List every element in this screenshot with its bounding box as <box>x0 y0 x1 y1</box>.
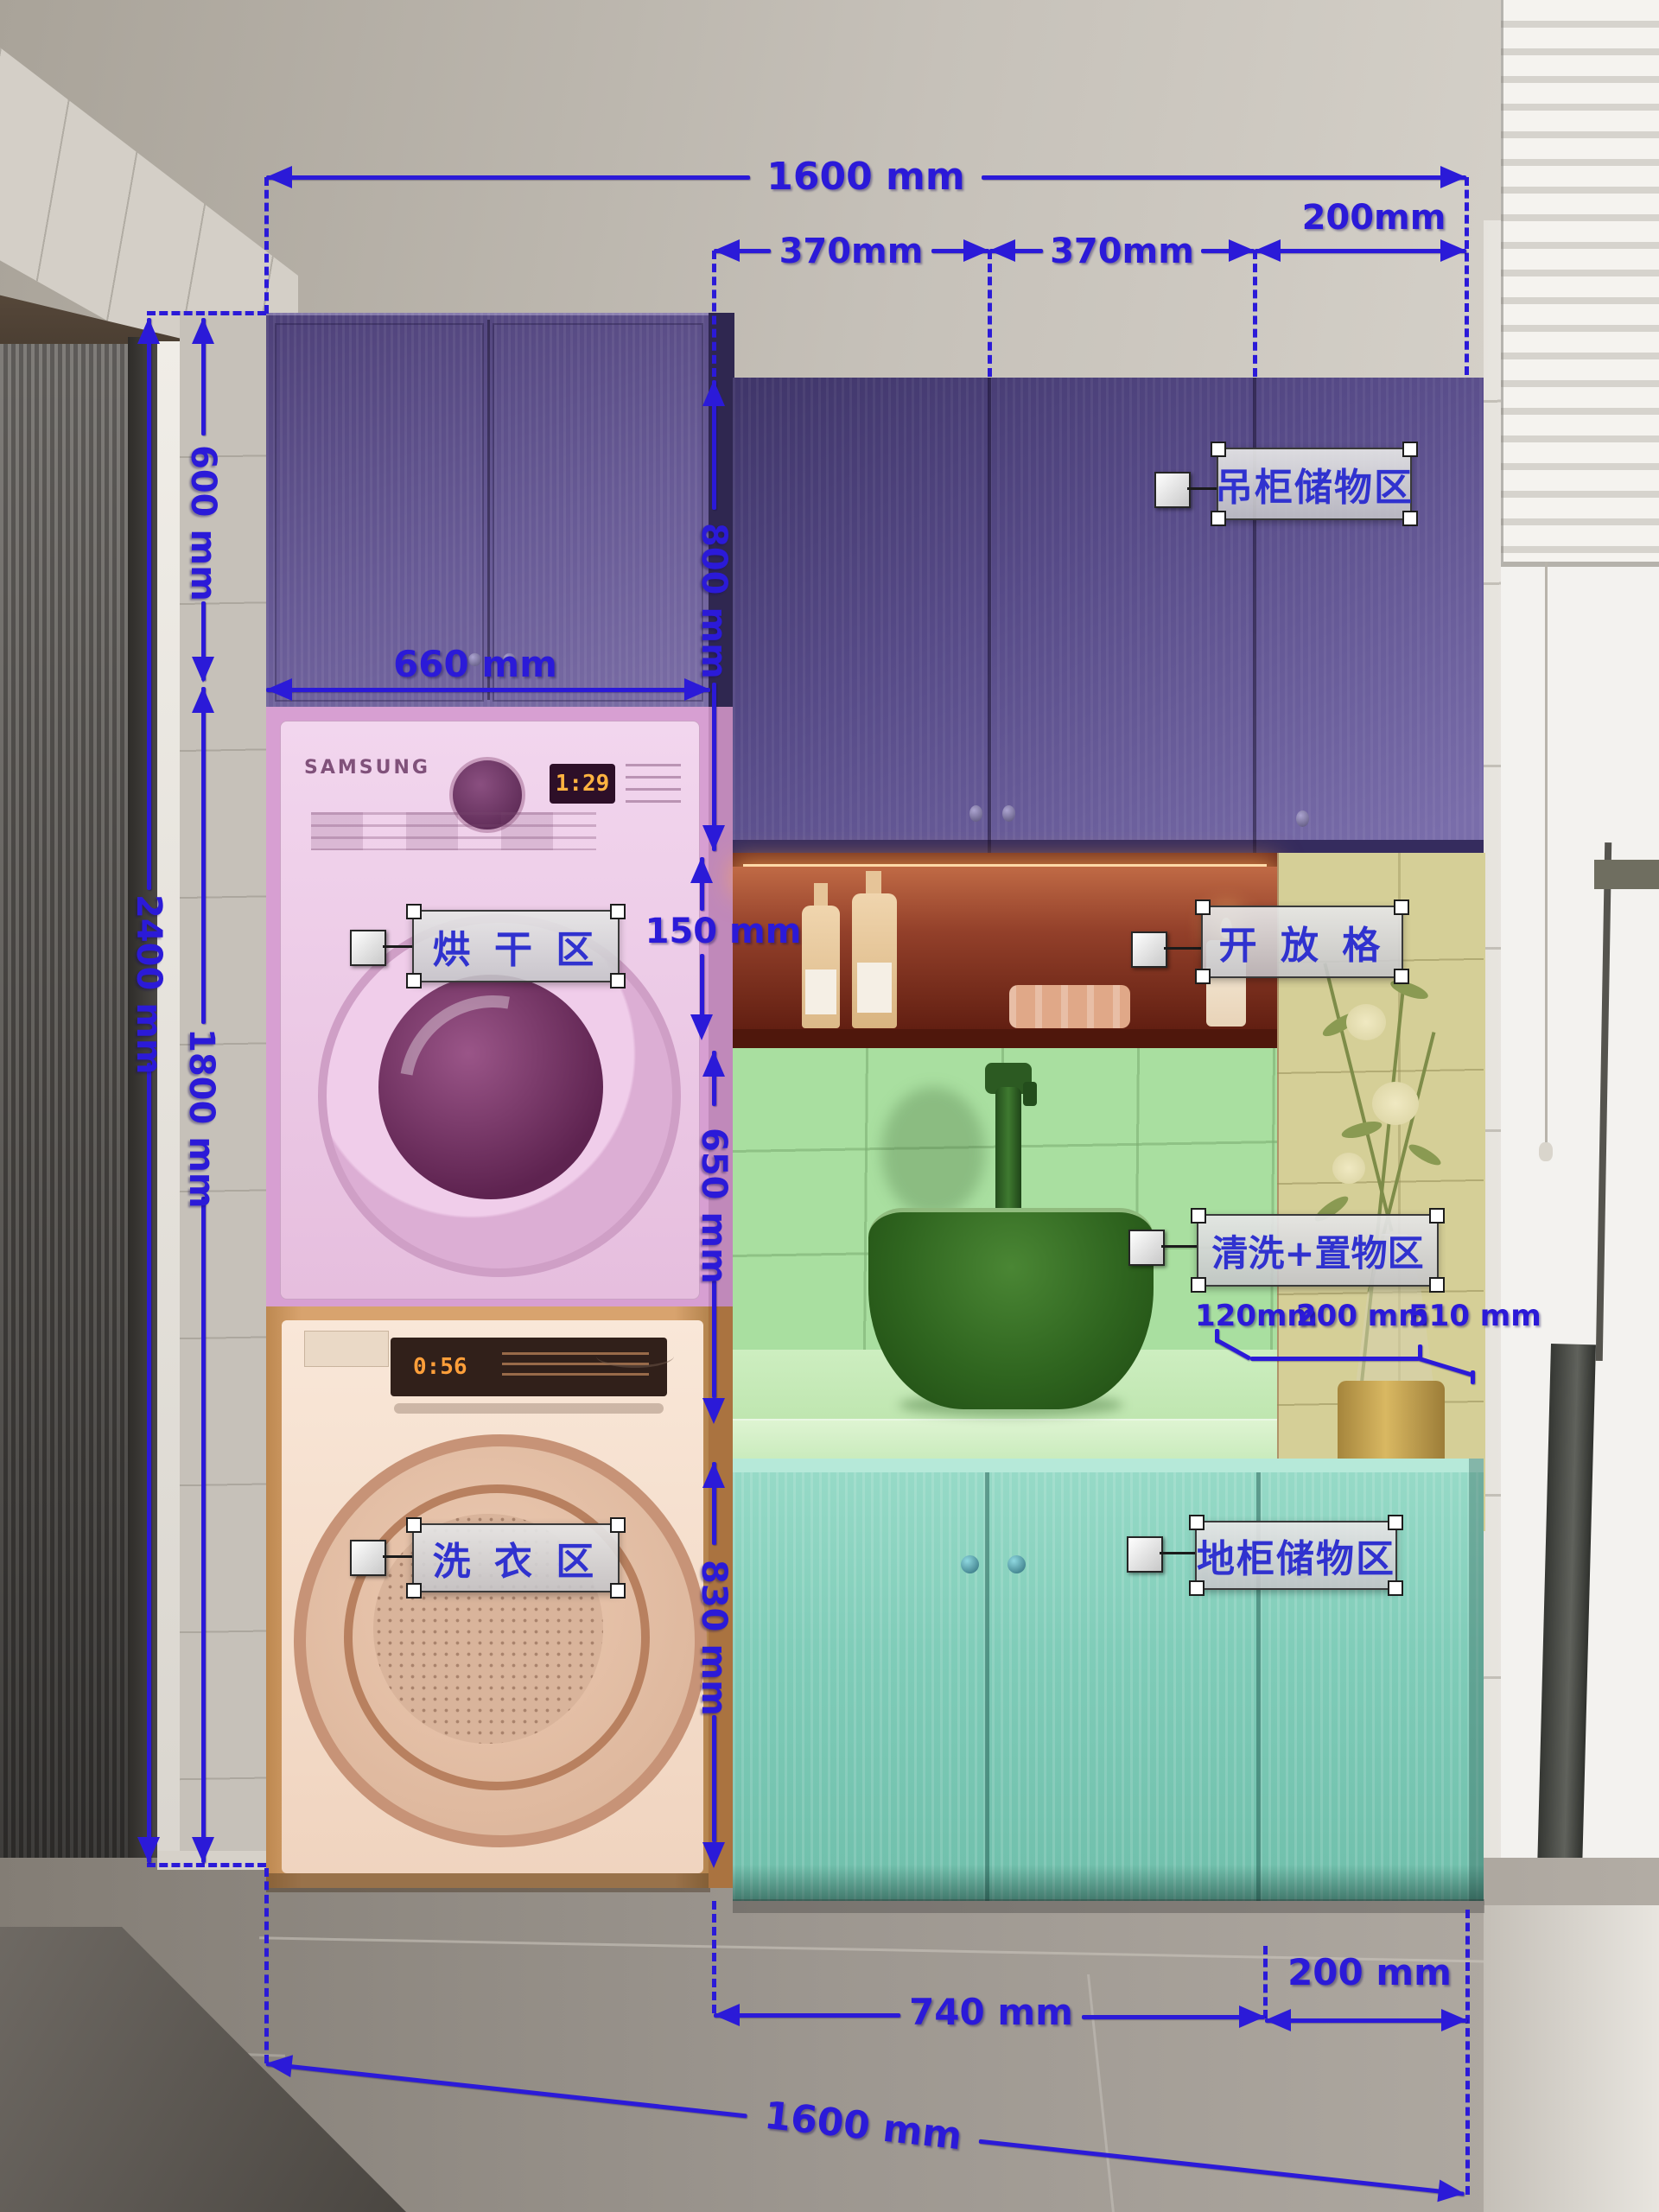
tag-handle <box>1189 1515 1205 1530</box>
countertop-front-edge <box>733 1419 1277 1460</box>
dim-arrow-up <box>702 1462 725 1488</box>
dim-arrow-down <box>690 1014 713 1040</box>
tag-lead-line <box>383 945 414 948</box>
dim-bottom-right: 200 mm <box>1279 1955 1460 1991</box>
tag-handle <box>1388 1580 1403 1596</box>
dim-arrow-left <box>264 2052 293 2077</box>
cabinet-knob <box>969 805 982 822</box>
dim-arrow-up <box>702 1051 725 1077</box>
tag-open-shelf: 开 放 格 <box>1201 906 1403 978</box>
base-cabinet-right-shade <box>1469 1459 1484 1901</box>
dim-arrow-left <box>714 239 740 262</box>
flower-bloom <box>1332 1153 1365 1184</box>
green-glass-basin <box>868 1208 1154 1409</box>
tag-label: 洗 衣 区 <box>433 1530 600 1586</box>
tag-handle <box>1191 1208 1206 1224</box>
annotated-laundry-room-diagram: SAMSUNG 1:29 0:56 <box>0 0 1659 2212</box>
dim-arrow-left <box>1265 2009 1291 2031</box>
dim-top-seg3: 200mm <box>1287 200 1460 235</box>
cabinet-knob <box>1296 810 1309 827</box>
washer-logo-script <box>596 1344 674 1368</box>
tag-handle <box>1195 969 1211 984</box>
tag-handle <box>1429 1277 1445 1293</box>
dim-line <box>201 1197 206 1863</box>
tag-marker <box>350 930 386 966</box>
dim-top-total: 1600 mm <box>753 158 978 196</box>
washer-sticker <box>304 1331 389 1367</box>
open-shelf-bottom-lip <box>733 1029 1277 1050</box>
tag-wash-storage: 清洗+置物区 <box>1197 1214 1439 1287</box>
dim-arrow-right <box>1440 239 1466 262</box>
dim-arrow-right <box>1440 166 1466 188</box>
tag-handle <box>610 1517 626 1533</box>
tag-label: 地柜储物区 <box>1197 1528 1395 1583</box>
dim-arrow-right <box>1441 2009 1467 2031</box>
dim-top-seg1: 370mm <box>772 234 931 269</box>
tag-handle <box>406 973 422 988</box>
dim-line <box>147 1063 151 1863</box>
dim-arrow-left <box>266 166 292 188</box>
dim-dryer-width: 660 mm <box>363 646 588 683</box>
dim-arrow-down <box>137 1837 160 1863</box>
dim-extension <box>712 1901 716 2013</box>
dim-extension <box>147 1863 266 1867</box>
base-cabinet-bottom-shadow <box>733 1865 1484 1901</box>
tag-handle <box>610 973 626 988</box>
dim-arrow-right <box>1437 2179 1465 2204</box>
dim-extension <box>264 177 269 314</box>
tag-lead-line <box>383 1555 414 1558</box>
dim-arrow-up <box>690 857 713 883</box>
dim-counter-seg2: 200 mm <box>1296 1301 1403 1331</box>
tag-handle <box>1394 899 1409 915</box>
cabinet-knob <box>961 1555 979 1573</box>
tag-label: 开 放 格 <box>1219 914 1386 969</box>
dim-bracket <box>1250 1357 1420 1361</box>
dim-extension <box>264 1868 269 2063</box>
cabinet-knob <box>1007 1555 1026 1573</box>
dim-extension <box>988 251 992 377</box>
dim-arrow-down <box>702 1398 725 1424</box>
dim-line <box>266 175 750 180</box>
tag-marker <box>1128 1230 1165 1266</box>
tag-handle <box>1211 442 1226 457</box>
window-blinds <box>1501 0 1659 567</box>
blind-cord <box>1545 562 1548 1142</box>
dim-extension <box>1465 177 1469 375</box>
washer-bottom-shadow <box>266 1873 710 1892</box>
shelf-bottle-label <box>805 969 836 1014</box>
tag-lead-line <box>1187 487 1218 490</box>
dim-arrow-right <box>963 239 989 262</box>
tag-handle <box>610 904 626 919</box>
tag-laundry-area: 洗 衣 区 <box>412 1523 620 1592</box>
dryer-display: 1:29 <box>550 764 615 804</box>
tag-marker <box>350 1540 386 1576</box>
tag-label: 清洗+置物区 <box>1211 1224 1423 1277</box>
dim-line <box>982 175 1466 180</box>
dim-arrow-right <box>684 678 710 701</box>
tag-handle <box>406 904 422 919</box>
tag-label: 吊柜储物区 <box>1215 456 1414 512</box>
tag-marker <box>1127 1536 1163 1573</box>
wall-cabinet-seam <box>988 378 991 853</box>
flower-bloom <box>1346 1004 1386 1040</box>
dim-extension <box>712 251 716 377</box>
dim-arrow-down <box>702 825 725 851</box>
dim-total-height: 2400 mm <box>131 894 166 1058</box>
dim-line <box>700 954 704 1016</box>
dim-bottom-left: 740 mm <box>900 1994 1082 2031</box>
washer-display-time: 0:56 <box>413 1354 467 1380</box>
dim-arrow-left <box>1255 239 1281 262</box>
wall-cabinets-bottom-edge <box>733 840 1484 853</box>
tag-base-cabinet: 地柜储物区 <box>1195 1521 1397 1590</box>
floor-cabinet-shadow <box>733 1899 1484 1913</box>
dim-line <box>1082 2015 1265 2019</box>
tag-handle <box>1402 442 1418 457</box>
dim-backsplash-height: 650 mm <box>696 1128 731 1274</box>
tag-drying-area: 烘 干 区 <box>412 910 620 982</box>
tag-handle <box>1191 1277 1206 1293</box>
dim-top-seg2: 370mm <box>1042 234 1202 269</box>
dryer-program-list <box>311 812 596 850</box>
dryer-panel-text-lines <box>626 764 681 804</box>
dryer-brand-label: SAMSUNG <box>304 757 430 779</box>
dim-arrow-down <box>192 1837 214 1863</box>
dim-base-cabinet-height: 830 mm <box>696 1560 731 1707</box>
tag-handle <box>1394 969 1409 984</box>
tag-marker <box>1131 931 1167 968</box>
cabinet-knob <box>1002 805 1015 822</box>
tag-lead-line <box>1164 947 1203 950</box>
tag-label: 烘 干 区 <box>433 918 600 974</box>
dim-open-shelf-height: 150 mm <box>641 914 805 949</box>
tag-handle <box>406 1583 422 1599</box>
tag-hanging-cabinet: 吊柜储物区 <box>1217 448 1412 520</box>
tag-handle <box>1195 899 1211 915</box>
shelf-bottle-label <box>857 963 892 1013</box>
dim-line <box>1255 249 1466 253</box>
dim-line <box>712 1281 716 1398</box>
base-cabinet-top-rail <box>733 1459 1484 1472</box>
base-cabinet-seam <box>985 1472 989 1901</box>
blind-cord-knob <box>1539 1142 1553 1161</box>
shelf-towel <box>1009 985 1130 1028</box>
dryer-display-time: 1:29 <box>556 771 610 797</box>
faucet-spout <box>1023 1082 1037 1106</box>
window-frame-horizontal <box>1594 860 1659 889</box>
dim-arrow-left <box>989 239 1015 262</box>
dim-arrow-up <box>192 318 214 344</box>
dim-arrow-down <box>192 657 214 683</box>
dim-line <box>712 1715 716 1842</box>
dim-extension <box>147 311 266 315</box>
dim-arrow-down <box>702 1842 725 1868</box>
tag-handle <box>1211 511 1226 526</box>
dim-arrow-left <box>714 2004 740 2026</box>
dim-extension <box>1253 251 1257 377</box>
dim-line <box>714 2013 900 2018</box>
flower-bloom <box>1372 1082 1419 1125</box>
dim-line <box>266 688 710 692</box>
faucet-shadow <box>881 1087 985 1217</box>
dim-tick <box>1471 1370 1475 1384</box>
tag-handle <box>1388 1515 1403 1530</box>
tag-handle <box>406 1517 422 1533</box>
dim-arrow-up <box>192 687 214 713</box>
dim-hanging-height: 600 mm <box>186 445 220 592</box>
dim-arrow-right <box>1239 2005 1265 2028</box>
dim-lower-height: 1800 mm <box>184 1028 219 1192</box>
dim-arrow-up <box>702 380 725 406</box>
dim-line <box>201 687 206 1024</box>
tag-lead-line <box>1160 1552 1197 1554</box>
dim-arrow-up <box>137 318 160 344</box>
washer-button-strip <box>394 1403 664 1414</box>
dim-counter-seg3: 510 mm <box>1408 1301 1516 1331</box>
tag-handle <box>1402 511 1418 526</box>
wall-edge-highlight <box>157 341 180 1910</box>
tag-handle <box>1429 1208 1445 1224</box>
gold-vase-base <box>1338 1381 1445 1471</box>
tag-handle <box>610 1583 626 1599</box>
dim-extension <box>1465 1910 1470 2195</box>
tag-lead-line <box>1161 1245 1198 1248</box>
dim-arrow-right <box>1229 239 1255 262</box>
dim-counter-seg1: 120mm <box>1195 1301 1290 1331</box>
floor-light-patch <box>1484 1905 1659 2212</box>
dim-line <box>1265 2018 1467 2023</box>
dim-arrow-left <box>266 678 292 701</box>
dim-wall-cabinet-height: 800 mm <box>696 523 731 670</box>
dim-line <box>147 318 151 890</box>
tag-marker <box>1154 472 1191 508</box>
tag-handle <box>1189 1580 1205 1596</box>
